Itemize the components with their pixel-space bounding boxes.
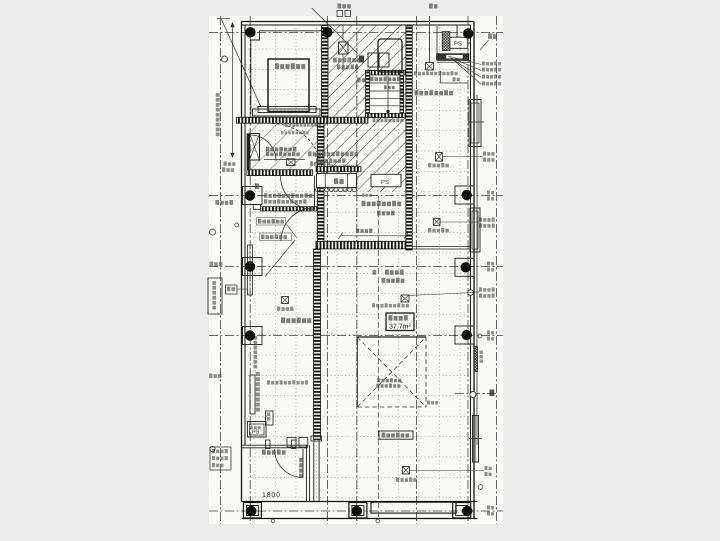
svg-text:PS: PS — [252, 430, 260, 436]
svg-text:1800: 1800 — [262, 492, 281, 499]
svg-text:PS: PS — [381, 180, 389, 186]
svg-text:37.7m²: 37.7m² — [389, 324, 411, 331]
svg-text:PS: PS — [454, 42, 462, 48]
